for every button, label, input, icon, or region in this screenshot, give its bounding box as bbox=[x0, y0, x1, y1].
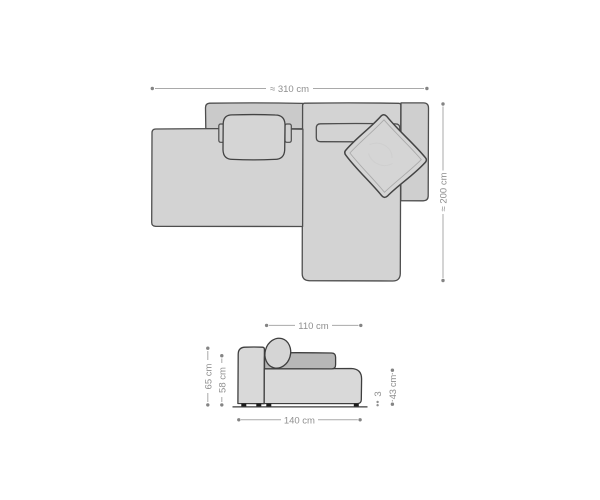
svg-text:65 cm: 65 cm bbox=[203, 363, 214, 389]
svg-text:43 cm: 43 cm bbox=[388, 375, 399, 400]
svg-text:≈ 200 cm: ≈ 200 cm bbox=[439, 172, 450, 211]
svg-text:110 cm: 110 cm bbox=[298, 321, 329, 332]
svg-text:140 cm: 140 cm bbox=[284, 415, 315, 426]
svg-text:3: 3 bbox=[373, 391, 384, 396]
svg-text:≈ 310 cm: ≈ 310 cm bbox=[270, 84, 309, 95]
svg-text:58 cm: 58 cm bbox=[217, 367, 228, 393]
